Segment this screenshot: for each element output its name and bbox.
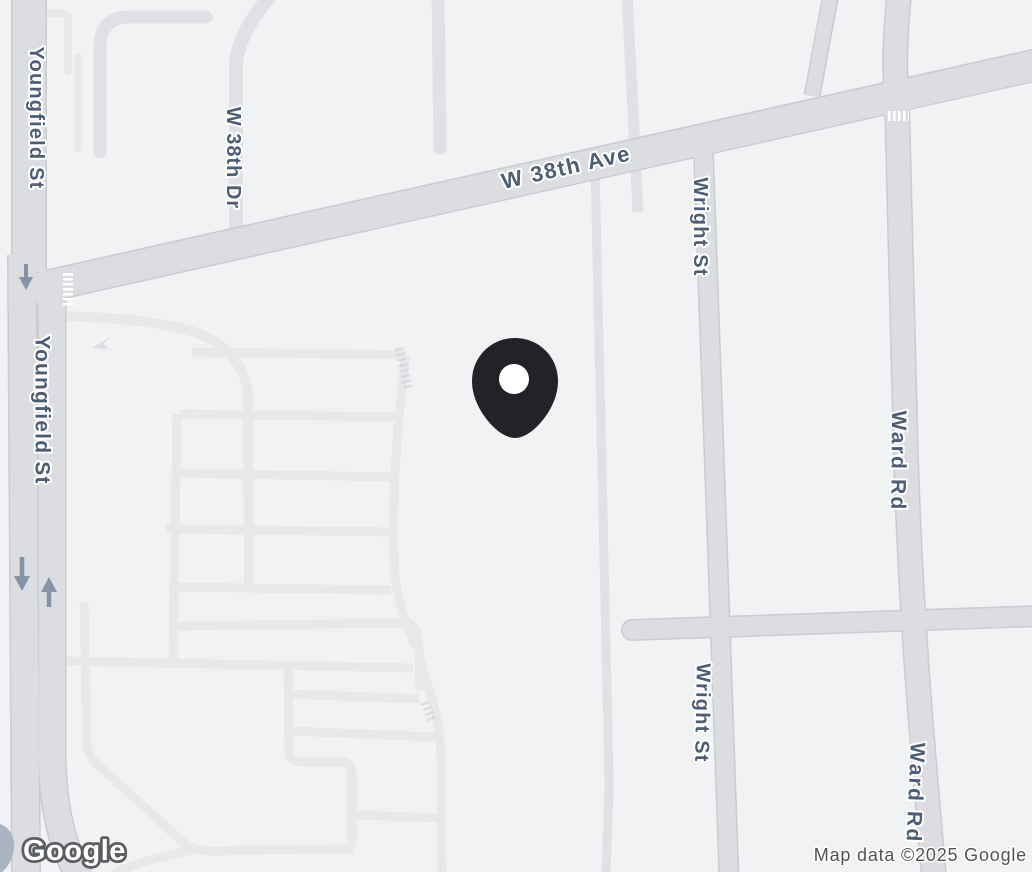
road-label-youngfield-st-2: Youngfield St xyxy=(31,335,54,484)
road-label-ward-rd-1: Ward Rd xyxy=(886,410,910,511)
road-label-youngfield-st-1: Youngfield St xyxy=(25,47,47,190)
google-logo[interactable]: Google xyxy=(23,835,126,867)
road-label-wright-st-1: Wright St xyxy=(689,177,711,276)
map-attribution: Map data ©2025 Google xyxy=(814,845,1027,865)
road-label-w-38th-dr: W 38th Dr xyxy=(222,107,244,209)
map-canvas[interactable]: Youngfield St Youngfield St W 38th Dr W … xyxy=(0,0,1032,872)
faint-turn-arrow-icon xyxy=(92,337,110,349)
location-pin[interactable] xyxy=(472,338,558,438)
road-labels: Youngfield St Youngfield St W 38th Dr W … xyxy=(25,47,929,844)
pin-hole xyxy=(499,364,529,394)
road-label-ward-rd-2: Ward Rd xyxy=(901,742,928,844)
road-label-wright-st-2: Wright St xyxy=(690,663,714,763)
